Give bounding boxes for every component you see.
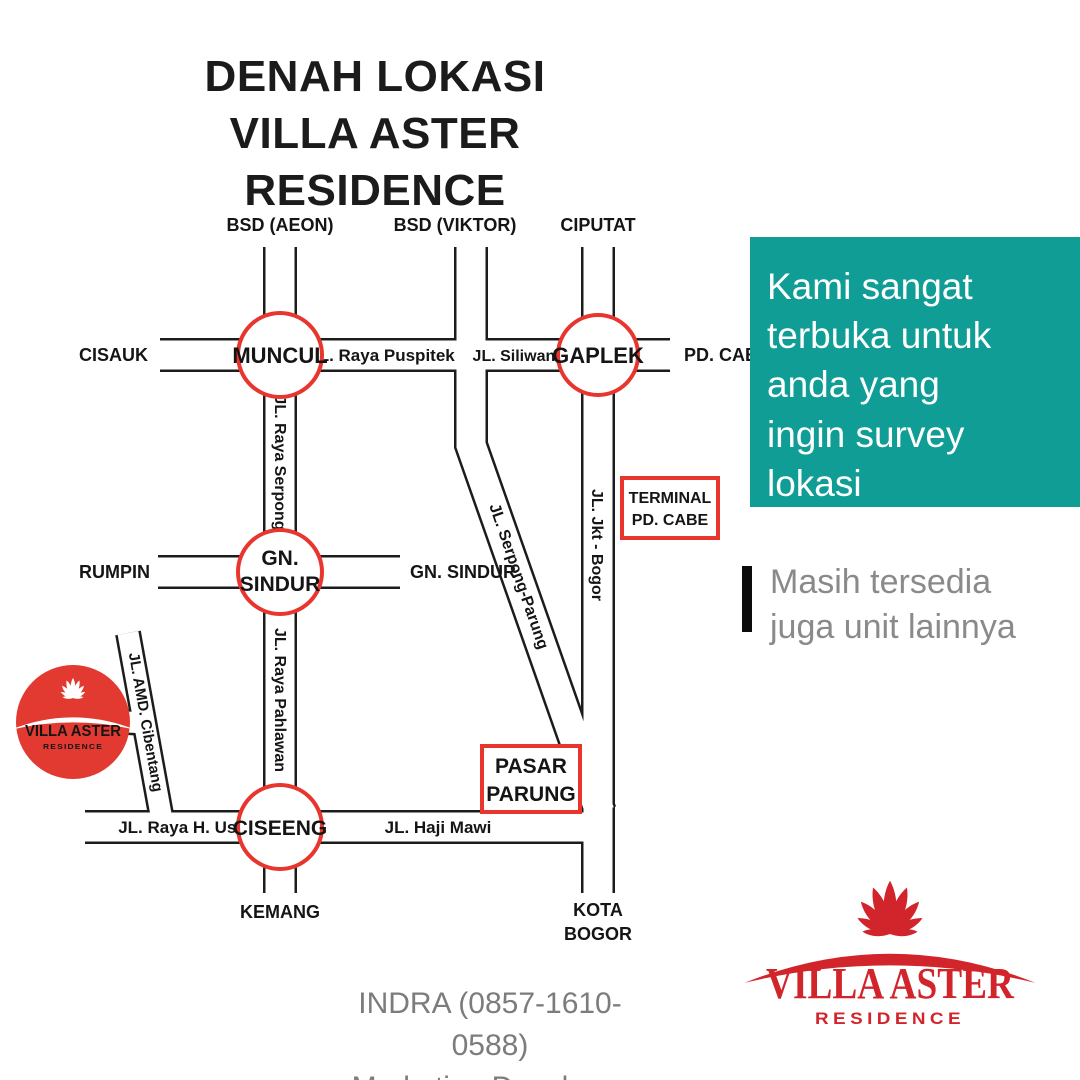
site-marker: VILLA ASTER RESIDENCE [10,665,136,779]
site-marker-name: VILLA ASTER [25,723,121,740]
contact-line-2: Marketing Developer [322,1067,658,1080]
promo-line-4: ingin survey [767,410,1080,459]
road-label-raya-serpong: JL. Raya Serpong [271,395,288,530]
promo-panel: Kami sangat terbuka untuk anda yang ingi… [750,237,1080,507]
brand-logo: VILLA ASTER RESIDENCE [730,862,1050,1067]
brand-flower-icon [856,881,925,938]
promo-line-5: lokasi [767,459,1080,508]
dest-label-cisauk: CISAUK [79,345,148,365]
brand-name: VILLA ASTER [766,959,1015,1008]
accent-bar [742,566,752,632]
terminal-label-2: PD. CABE [632,512,709,529]
terminal-pd-cabe-box [622,478,718,538]
dest-label-rumpin: RUMPIN [79,562,150,582]
road-label-raya-h-usa: JL. Raya H. Usa [118,818,246,837]
promo-line-2: terbuka untuk [767,311,1080,360]
road-label-raya-pahlawan: JL. Raya Pahlawan [271,628,288,772]
road-label-puspitek: JL. Raya Puspitek [309,346,455,365]
contact-line-1: INDRA (0857-1610-0588) [322,983,658,1067]
dest-label-kota-bogor-1: KOTA [573,900,623,920]
availability-note: Masih tersedia juga unit lainnya [742,560,1016,650]
dest-label-bsd-aeon: BSD (AEON) [227,215,334,235]
pasar-label-2: PARUNG [486,783,575,806]
road-label-haji-mawi: JL. Haji Mawi [385,818,492,837]
dest-label-ciputat: CIPUTAT [560,215,635,235]
promo-line-3: anda yang [767,360,1080,409]
dest-label-kota-bogor-2: BOGOR [564,924,632,944]
terminal-label-1: TERMINAL [629,490,712,507]
roundabout-label-gn-sindur-1: GN. [261,547,298,570]
availability-text: Masih tersedia juga unit lainnya [770,560,1016,650]
roundabout-label-muncul: MUNCUL [232,343,327,368]
pasar-label-1: PASAR [495,755,567,778]
dest-label-gn-sindur: GN. SINDUR [410,562,516,582]
road-label-jkt-bogor: JL. Jkt - Bogor [588,489,605,601]
dest-label-bsd-viktor: BSD (VIKTOR) [394,215,517,235]
dest-label-kemang: KEMANG [240,902,320,922]
availability-line-1: Masih tersedia [770,560,1016,605]
brand-logo-svg: VILLA ASTER RESIDENCE [730,862,1050,1062]
poster-canvas: DENAH LOKASI VILLA ASTER RESIDENCE [0,0,1080,1080]
roundabout-label-gaplek: GAPLEK [552,343,644,368]
promo-line-1: Kami sangat [767,262,1080,311]
brand-sub: RESIDENCE [815,1009,965,1028]
roundabout-gn-sindur [238,530,322,614]
roundabout-label-gn-sindur-2: SINDUR [240,573,321,596]
contact-block: INDRA (0857-1610-0588) Marketing Develop… [322,983,658,1080]
roundabout-label-ciseeng: CISEENG [233,817,328,840]
availability-line-2: juga unit lainnya [770,605,1016,650]
site-marker-sub: RESIDENCE [43,744,103,751]
